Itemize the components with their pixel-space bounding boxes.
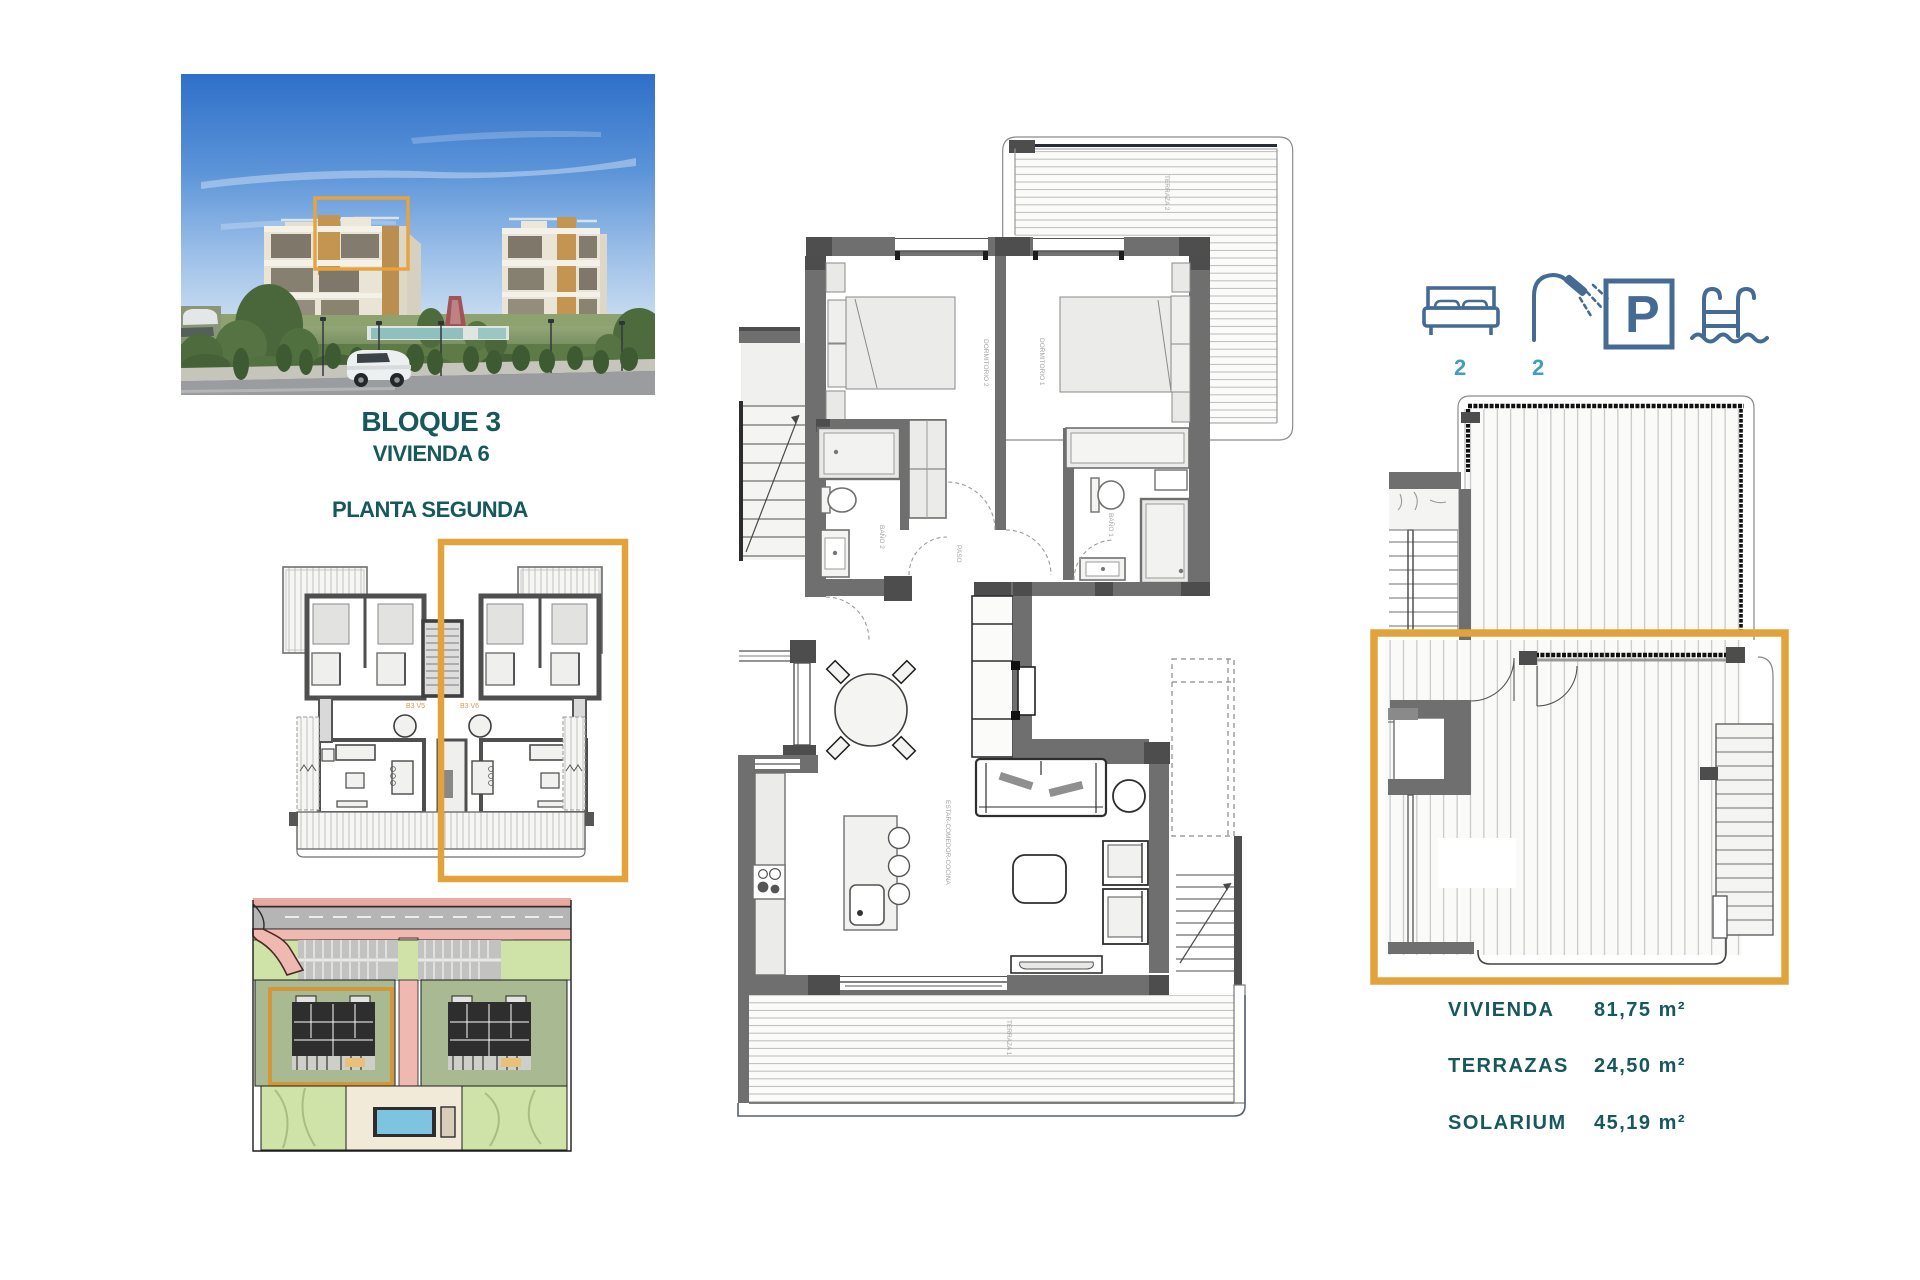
svg-text:2: 2	[1532, 355, 1544, 380]
svg-text:TERRAZA 1: TERRAZA 1	[1005, 1020, 1012, 1056]
svg-text:DORMITORIO 2: DORMITORIO 2	[982, 339, 989, 387]
svg-text:BAÑO 2: BAÑO 2	[878, 525, 887, 549]
svg-text:ESTAR-COMEDOR-COCINA: ESTAR-COMEDOR-COCINA	[944, 800, 951, 885]
svg-text:BAÑO 1: BAÑO 1	[1107, 513, 1116, 537]
svg-text:DORMITORIO 1: DORMITORIO 1	[1038, 338, 1045, 386]
svg-text:2: 2	[1454, 355, 1466, 380]
svg-text:B3 V5: B3 V5	[406, 703, 425, 710]
svg-text:PASO: PASO	[955, 545, 962, 563]
svg-text:P: P	[1625, 286, 1660, 344]
svg-text:TERRAZA 2: TERRAZA 2	[1163, 175, 1170, 211]
svg-text:B3 V6: B3 V6	[460, 703, 479, 710]
